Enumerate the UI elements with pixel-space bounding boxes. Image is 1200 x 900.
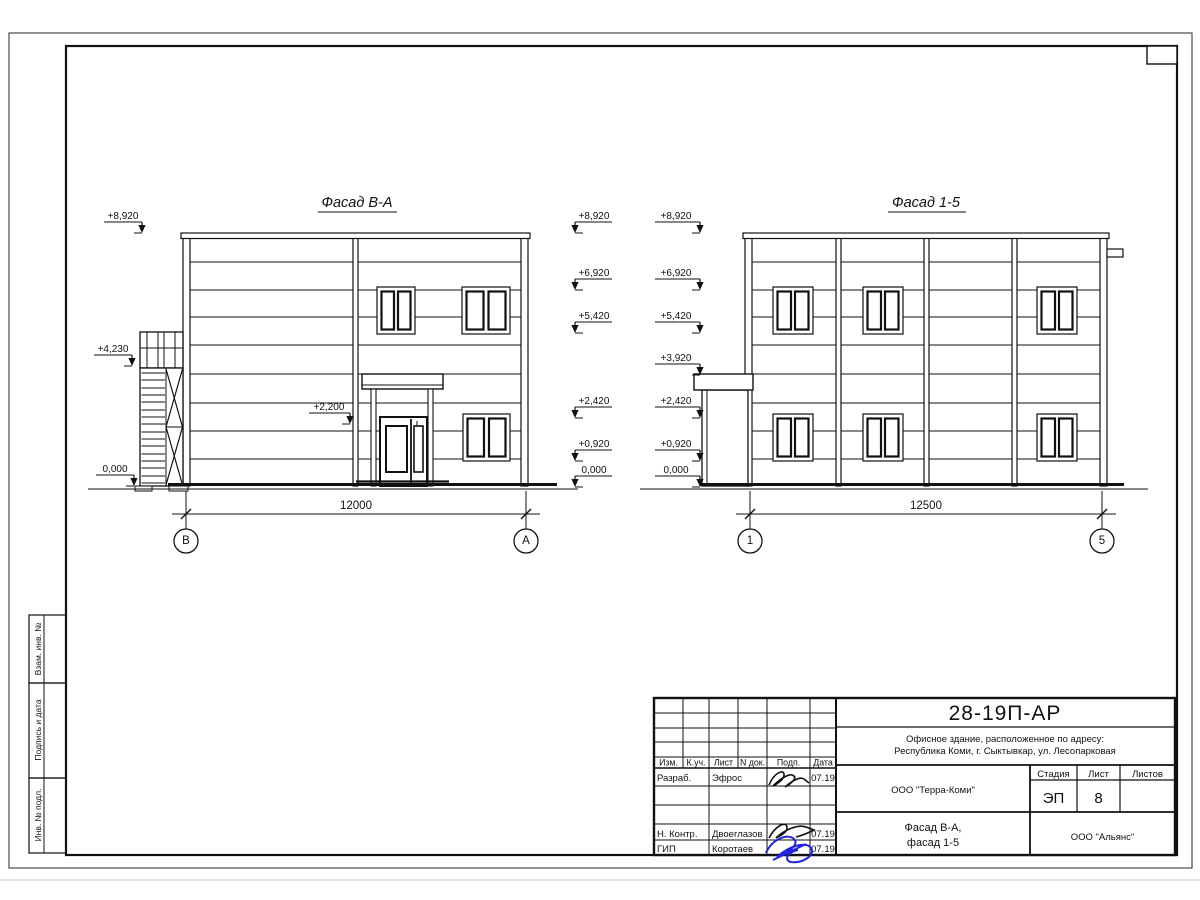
facade-15-pilaster (1012, 238, 1017, 486)
title-block: 28-19П-АР Офисное здание, расположенное … (654, 698, 1175, 862)
axis-label: 1 (747, 535, 753, 547)
facade-ba-title: Фасад В-А (321, 195, 392, 211)
drawing-title-line1: Фасад В-А, (905, 822, 962, 834)
side-label-podpis: Подпись и дата (33, 699, 43, 760)
elevation-mark-label: +0,920 (579, 439, 610, 450)
side-label-vzam: Взам. инв. № (33, 623, 43, 676)
doc-number: 28-19П-АР (949, 702, 1062, 725)
corner-stamp-box (1147, 46, 1177, 64)
row-role: Разраб. (657, 773, 691, 784)
elevation-mark-label: +8,920 (661, 211, 692, 222)
sheet-number: 8 (1094, 790, 1102, 807)
axis-label: А (522, 535, 530, 547)
col-izm: Изм. (659, 758, 678, 768)
col-data: Дата (813, 758, 833, 768)
facade-ba-right-wall (521, 238, 528, 486)
col-podp: Подп. (777, 758, 800, 768)
axis-label: В (182, 535, 190, 547)
col-list: Лист (714, 758, 733, 768)
row-name: Коротаев (712, 844, 753, 855)
axis-label: 5 (1099, 535, 1105, 547)
facade-ba-left-wall (183, 238, 190, 486)
project-description-line1: Офисное здание, расположенное по адресу: (906, 734, 1104, 745)
canopy-post-left (371, 389, 376, 486)
sheets-label: Листов (1132, 769, 1163, 780)
facade-ba-center-mullion (353, 238, 358, 486)
row-role: ГИП (657, 844, 676, 855)
row-role: Н. Контр. (657, 829, 697, 840)
elevation-mark-label: +3,920 (661, 353, 692, 364)
drawing-title-line2: фасад 1-5 (907, 837, 959, 849)
row-date: 07.19 (811, 844, 835, 855)
elevation-mark-label: +4,230 (98, 344, 129, 355)
col-kuch: К.уч. (687, 758, 706, 768)
grid-axis-bubble-a: А (514, 529, 538, 553)
facade-15-title: Фасад 1-5 (892, 195, 961, 211)
stage-value: ЭП (1043, 790, 1065, 807)
dimension-value: 12000 (340, 500, 372, 512)
elevation-mark-label: +2,200 (314, 402, 345, 413)
grid-axis-bubble-1: 1 (738, 529, 762, 553)
exterior-stair-tower (135, 332, 188, 491)
elevation-mark-label: 0,000 (663, 465, 688, 476)
facade-15-pilaster (924, 238, 929, 486)
row-date: 07.19 (811, 829, 835, 840)
grid-axis-bubble-v: В (174, 529, 198, 553)
row-date: 07.19 (811, 773, 835, 784)
entrance-canopy (362, 374, 443, 389)
stage-label: Стадия (1037, 769, 1069, 780)
row-name: Эфрос (712, 773, 742, 784)
elevation-mark-label: +5,420 (579, 311, 610, 322)
elevation-mark-label: +8,920 (108, 211, 139, 222)
facade-ba-parapet (181, 233, 530, 239)
sheet-label: Лист (1088, 769, 1109, 780)
side-label-inv: Инв. № подл. (33, 789, 43, 842)
wall-pipe-outlet (1107, 249, 1123, 257)
elevation-mark-label: 0,000 (102, 464, 127, 475)
drawing-sheet: Взам. инв. № Подпись и дата Инв. № подл.… (0, 0, 1200, 900)
facade-15-parapet (743, 233, 1109, 239)
dimension-value: 12500 (910, 500, 942, 512)
col-ndok: N док. (740, 758, 765, 768)
elevation-mark-label: +8,920 (579, 211, 610, 222)
grid-axis-bubble-5: 5 (1090, 529, 1114, 553)
elevation-mark-label: +5,420 (661, 311, 692, 322)
entrance-door (380, 417, 427, 486)
facade-15-right-wall (1100, 238, 1107, 486)
elevation-mark-label: +6,920 (661, 268, 692, 279)
design-org: ООО "Терра-Коми" (891, 785, 975, 796)
elevation-mark-label: +0,920 (661, 439, 692, 450)
side-porch (694, 374, 753, 486)
elevation-mark-label: +2,420 (579, 396, 610, 407)
contractor-org: ООО "Альянс" (1071, 832, 1135, 843)
elevation-mark-label: +2,420 (661, 396, 692, 407)
elevation-mark-label: +6,920 (579, 268, 610, 279)
canopy-post-right (428, 389, 433, 486)
row-name: Двоеглазов (712, 829, 763, 840)
project-description-line2: Республика Коми, г. Сыктывкар, ул. Лесоп… (894, 746, 1116, 757)
elevation-mark-label: 0,000 (581, 465, 606, 476)
facade-15-pilaster (836, 238, 841, 486)
